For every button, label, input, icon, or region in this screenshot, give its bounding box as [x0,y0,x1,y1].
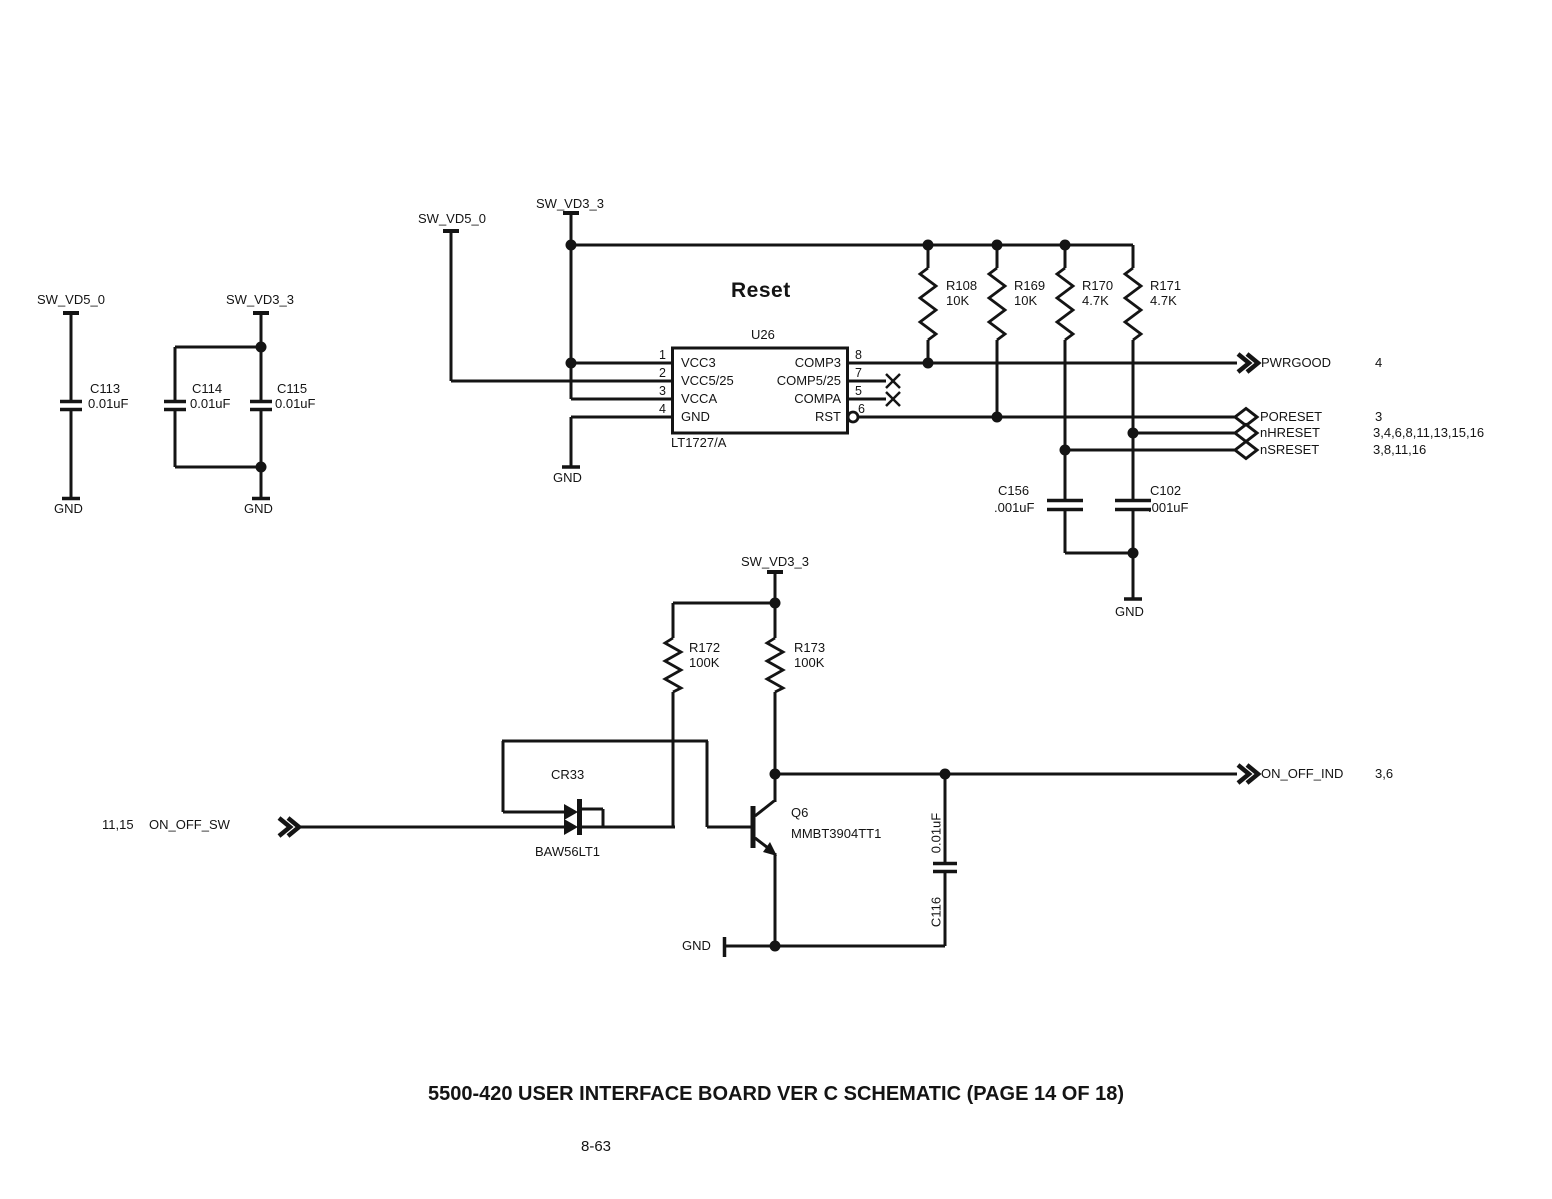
pin-name-vcc5-25: VCC5/25 [681,373,734,388]
page-refs-on-off-ind: 3,6 [1375,766,1393,781]
gnd-label: GND [244,501,273,516]
section-heading-reset: Reset [731,283,791,298]
capacitor-symbol-c113 [60,402,82,410]
chevron-in-on-off-sw [279,818,299,836]
res-value-r108: 10K [946,293,969,308]
net-label-nhreset: nHRESET [1260,425,1320,440]
capacitors [60,402,1151,872]
ground-bars [62,467,1142,957]
junction-dot [923,358,934,369]
cap-ref-c156: C156 [998,483,1029,498]
no-connect-marks [886,374,900,406]
pin-number-7: 7 [855,366,862,381]
ic-ref-u26: U26 [751,327,775,342]
pin-name-gnd: GND [681,409,710,424]
diode-symbol-cr33 [564,799,580,835]
cap-value-c115: 0.01uF [275,396,315,411]
net-label-sw-vd5-0: SW_VD5_0 [418,211,486,226]
page-refs-nsreset: 3,8,11,16 [1373,442,1426,457]
resistor-symbol-r169 [989,268,1005,340]
junction-dot [1060,445,1071,456]
offpage-diamonds [1235,409,1257,459]
chevron-out-on-off-ind [1238,765,1258,783]
net-label-nsreset: nSRESET [1260,442,1319,457]
cap-value-c114: 0.01uF [190,396,230,411]
page-refs-pwrgood: 4 [1375,355,1382,370]
junction-dot [566,358,577,369]
resistor-symbol-r170 [1057,268,1073,340]
res-value-r173: 100K [794,655,824,670]
page-refs-on-off-sw: 11,15 [102,817,134,832]
pin-name-rst: RST [740,409,841,424]
pin-name-compa: COMPA [740,391,841,406]
junction-dot [940,769,951,780]
transistor-part-mmbt3904: MMBT3904TT1 [791,826,881,841]
junction-dot [770,941,781,952]
junction-dot [1060,240,1071,251]
diode-triangle-top [564,804,578,820]
junction-dot [770,598,781,609]
resistor-symbol-r171 [1125,268,1141,340]
no-connect-x-pin5 [886,392,900,406]
pin-number-5: 5 [855,384,862,399]
res-ref-r169: R169 [1014,278,1045,293]
net-label-pwrgood: PWRGOOD [1261,355,1331,370]
capacitor-symbol-c114 [164,402,186,410]
cap-ref-c114: C114 [192,381,222,396]
res-value-r172: 100K [689,655,719,670]
page-number: 8-63 [581,1138,611,1155]
net-label-on-off-ind: ON_OFF_IND [1261,766,1343,781]
ic-part-lt1727: LT1727/A [671,435,726,450]
pin-number-3: 3 [634,384,666,399]
junction-dot [770,769,781,780]
cap-value-c113: 0.01uF [88,396,128,411]
gnd-label: GND [54,501,83,516]
gnd-label: GND [1115,604,1144,619]
pin-number-6: 6 [858,402,865,417]
cap-ref-c102: C102 [1150,483,1181,498]
junction-dot [566,240,577,251]
gnd-label: GND [682,938,711,953]
pin-name-vcca: VCCA [681,391,717,406]
pin-number-1: 1 [634,348,666,363]
sheet-title: 5500-420 USER INTERFACE BOARD VER C SCHE… [0,1083,1552,1106]
cap-ref-c113: C113 [90,381,120,396]
chevron-out-pwrgood [1238,354,1258,372]
junction-dot [1128,548,1139,559]
no-connect-x-pin7 [886,374,900,388]
transistor-collector [755,801,774,816]
net-label-sw-vd3-3: SW_VD3_3 [741,554,809,569]
active-low-bubble-rst [848,412,858,422]
page-refs-poreset: 3 [1375,409,1382,424]
cap-value-c102: .001uF [1148,500,1188,515]
res-ref-r172: R172 [689,640,720,655]
transistor-symbol-q6 [753,801,777,856]
capacitor-symbol-c116 [933,864,957,872]
junction-dot [923,240,934,251]
net-label-sw-vd3-3: SW_VD3_3 [226,292,294,307]
res-ref-r173: R173 [794,640,825,655]
pin-name-comp5-25: COMP5/25 [740,373,841,388]
pin-number-4: 4 [634,402,666,417]
junction-dot [992,412,1003,423]
diode-ref-cr33: CR33 [551,767,584,782]
diamond-nhreset [1235,425,1257,442]
res-value-r169: 10K [1014,293,1037,308]
resistor-symbol-r108 [920,268,936,340]
junction-dot [1128,428,1139,439]
schematic-graphics [0,0,1552,1199]
pin-number-8: 8 [855,348,862,363]
diode-part-baw56: BAW56LT1 [535,844,600,859]
resistor-symbol-r172 [665,638,681,692]
res-ref-r170: R170 [1082,278,1113,293]
res-ref-r171: R171 [1150,278,1181,293]
res-ref-r108: R108 [946,278,977,293]
net-label-on-off-sw: ON_OFF_SW [149,817,230,832]
pin-number-2: 2 [634,366,666,381]
junction-dots [256,240,1139,952]
res-value-r171: 4.7K [1150,293,1177,308]
net-label-poreset: PORESET [1260,409,1322,424]
junction-dot [992,240,1003,251]
junction-dot [256,462,267,473]
res-value-r170: 4.7K [1082,293,1109,308]
gnd-label: GND [553,470,582,485]
resistors [665,268,1141,692]
junction-dot [256,342,267,353]
page-refs-nhreset: 3,4,6,8,11,13,15,16 [1373,425,1484,440]
capacitor-symbol-c156 [1047,501,1083,510]
net-label-sw-vd5-0: SW_VD5_0 [37,292,105,307]
cap-ref-c116: C116 [929,897,944,927]
diamond-nsreset [1235,442,1257,459]
pin-name-vcc3: VCC3 [681,355,716,370]
resistor-symbol-r173 [767,638,783,692]
capacitor-symbol-c115 [250,402,272,410]
diode-triangle-bottom [564,819,578,835]
cap-value-c116: 0.01uF [929,813,944,853]
schematic-page: SW_VD5_0 SW_VD3_3 C113 0.01uF C114 0.01u… [0,0,1552,1199]
cap-value-c156: .001uF [994,500,1034,515]
transistor-ref-q6: Q6 [791,805,808,820]
pin-name-comp3: COMP3 [740,355,841,370]
net-label-sw-vd3-3: SW_VD3_3 [536,196,604,211]
cap-ref-c115: C115 [277,381,307,396]
capacitor-symbol-c102 [1115,501,1151,510]
